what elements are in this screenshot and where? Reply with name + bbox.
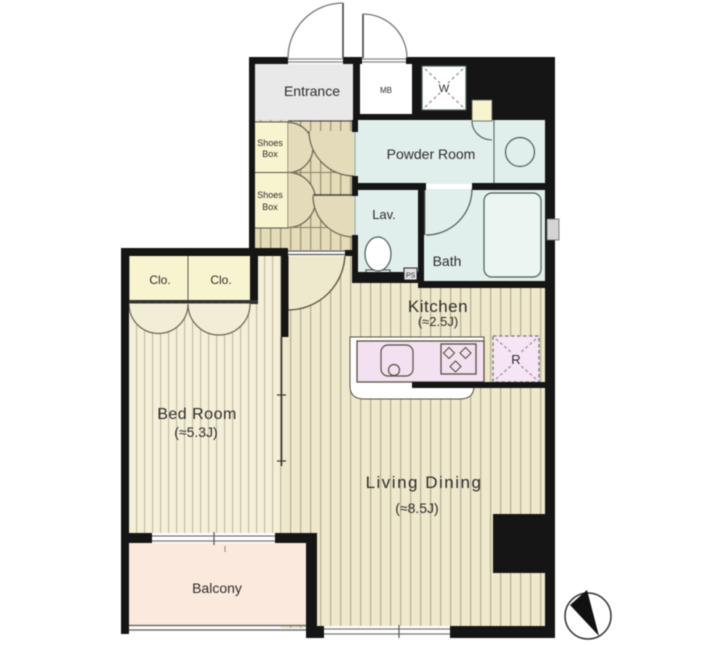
svg-text:Clo.: Clo. [210,273,231,287]
svg-text:R: R [511,352,520,367]
svg-text:(≈2.5J): (≈2.5J) [418,314,458,329]
svg-text:Entrance: Entrance [284,83,340,99]
svg-text:Powder Room: Powder Room [387,146,476,162]
svg-text:W: W [439,83,450,95]
svg-text:Shoes: Shoes [257,190,283,200]
svg-text:Clo.: Clo. [149,273,170,287]
svg-text:Bath: Bath [433,253,462,269]
svg-text:Shoes: Shoes [257,138,283,148]
svg-text:(≈5.3J): (≈5.3J) [174,424,217,440]
svg-text:Lav.: Lav. [372,207,396,222]
svg-text:Bed Room: Bed Room [157,406,237,423]
svg-text:PS: PS [406,273,416,280]
svg-text:MB: MB [380,86,392,95]
svg-text:Box: Box [262,149,278,159]
svg-text:Box: Box [262,202,278,212]
svg-text:(≈8.5J): (≈8.5J) [395,500,438,516]
svg-text:Balcony: Balcony [192,580,242,596]
svg-text:Living Dining: Living Dining [366,473,483,492]
